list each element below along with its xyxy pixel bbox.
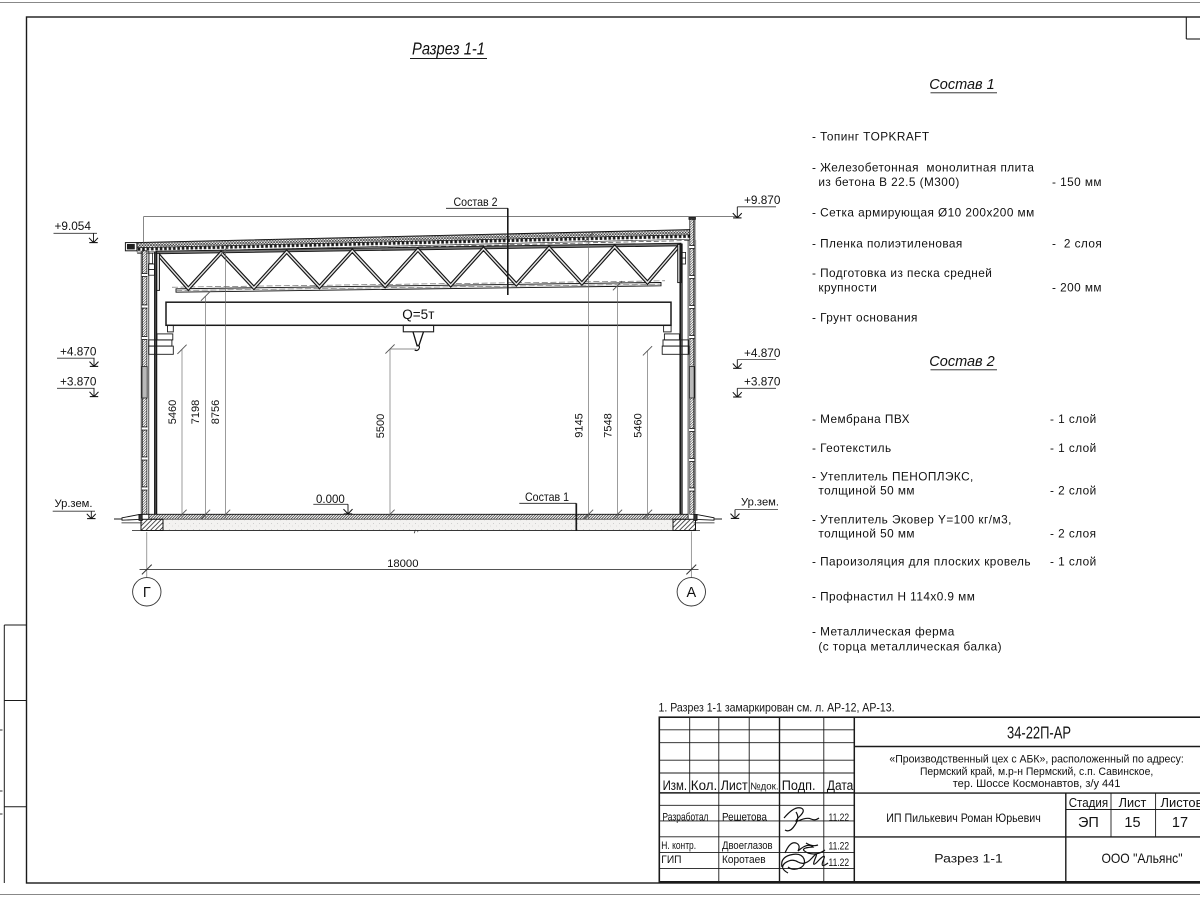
svg-text:ООО "Альянс": ООО "Альянс": [1101, 851, 1182, 866]
svg-text:- Геотекстиль: - Геотекстиль: [812, 441, 892, 455]
svg-text:5460: 5460: [167, 400, 179, 424]
svg-text:Решетова: Решетова: [722, 812, 767, 824]
svg-text:11.22: 11.22: [829, 812, 850, 824]
svg-text:Кол.: Кол.: [691, 778, 718, 793]
svg-text:Состав 2: Состав 2: [454, 195, 498, 209]
svg-text:- Утеплитель Эковер Y=100 кг/м: - Утеплитель Эковер Y=100 кг/м3,: [812, 512, 1012, 526]
svg-text:- 1 слой: - 1 слой: [1050, 554, 1097, 568]
svg-text:Дата: Дата: [827, 778, 854, 793]
svg-text:+3.870: +3.870: [60, 375, 97, 389]
svg-text:- Сетка армирующая Ø10 200х200: - Сетка армирующая Ø10 200х200 мм: [812, 206, 1035, 220]
svg-text:№док.: №док.: [750, 782, 778, 793]
svg-text:- Грунт основания: - Грунт основания: [812, 311, 918, 325]
svg-text:- 2 слой: - 2 слой: [1050, 483, 1097, 497]
svg-text:ГИП: ГИП: [661, 854, 681, 866]
svg-text:- Подготовка из песка средней: - Подготовка из песка средней: [812, 266, 992, 280]
svg-text:7198: 7198: [190, 400, 202, 424]
svg-text:Разрез 1-1: Разрез 1-1: [934, 852, 1003, 866]
svg-text:+4.870: +4.870: [60, 345, 97, 359]
svg-text:34-22П-АР: 34-22П-АР: [1007, 723, 1071, 743]
svg-text:Разрез 1-1: Разрез 1-1: [412, 39, 485, 59]
svg-text:15: 15: [1124, 815, 1140, 831]
svg-text:Состав 2: Состав 2: [929, 354, 994, 370]
svg-text:18000: 18000: [387, 558, 418, 570]
svg-text:Лист: Лист: [721, 778, 748, 793]
svg-text:(с торца металлическая балка): (с торца металлическая балка): [812, 639, 1002, 653]
svg-text:0.000: 0.000: [316, 494, 345, 506]
svg-text:Разработал: Разработал: [662, 812, 708, 824]
svg-text:Подп.: Подп.: [782, 778, 816, 793]
svg-text:11.22: 11.22: [829, 841, 850, 853]
svg-text:Листов: Листов: [1161, 795, 1200, 810]
svg-text:Н. контр.: Н. контр.: [661, 840, 696, 852]
svg-text:- 2 слоя: - 2 слоя: [1052, 237, 1102, 251]
svg-text:+3.870: +3.870: [744, 375, 781, 389]
svg-text:11.22: 11.22: [829, 857, 850, 869]
svg-text:из бетона В 22.5 (М300): из бетона В 22.5 (М300): [812, 175, 960, 189]
svg-text:Состав 1: Состав 1: [525, 490, 569, 504]
svg-text:- Утеплитель ПЕНОПЛЭКС,: - Утеплитель ПЕНОПЛЭКС,: [812, 469, 974, 483]
svg-text:- 150 мм: - 150 мм: [1052, 175, 1102, 189]
svg-text:- Железобетонная монолитная п: - Железобетонная монолитная плита: [812, 161, 1034, 175]
svg-text:- 1 слой: - 1 слой: [1050, 412, 1097, 426]
svg-text:+9.054: +9.054: [55, 219, 92, 233]
svg-text:- 2 слоя: - 2 слоя: [1050, 526, 1097, 540]
svg-text:толщиной 50 мм: толщиной 50 мм: [812, 483, 915, 497]
svg-text:Q=5т: Q=5т: [402, 307, 434, 322]
svg-text:Состав 1: Состав 1: [929, 77, 994, 93]
svg-text:крупности: крупности: [812, 280, 877, 294]
svg-text:7548: 7548: [602, 413, 614, 437]
svg-text:- Мембрана ПВХ: - Мембрана ПВХ: [812, 412, 910, 426]
svg-text:1. Разрез 1-1 замаркирован см.: 1. Разрез 1-1 замаркирован см. л. АР-12,…: [659, 701, 895, 715]
svg-text:ИП Пилькевич Роман Юрьевич: ИП Пилькевич Роман Юрьевич: [886, 811, 1041, 825]
svg-text:5460: 5460: [632, 413, 644, 437]
svg-text:+9.870: +9.870: [744, 193, 781, 207]
svg-text:- Пленка полиэтиленовая: - Пленка полиэтиленовая: [812, 237, 963, 251]
svg-text:А: А: [686, 585, 696, 601]
svg-text:- Профнастил Н 114х0.9 мм: - Профнастил Н 114х0.9 мм: [812, 590, 975, 604]
svg-text:17: 17: [1172, 815, 1188, 831]
svg-text:- Топинг TOPKRAFT: - Топинг TOPKRAFT: [812, 129, 929, 143]
svg-text:Стадия: Стадия: [1069, 795, 1108, 810]
svg-text:+4.870: +4.870: [744, 346, 781, 360]
svg-text:- 1 слой: - 1 слой: [1050, 441, 1097, 455]
svg-text:«Производственный цех с АБК»,: «Производственный цех с АБК», расположен…: [889, 753, 1184, 765]
svg-text:- 200 мм: - 200 мм: [1052, 280, 1102, 294]
svg-text:Двоеглазов: Двоеглазов: [722, 840, 773, 852]
svg-text:9145: 9145: [573, 413, 585, 437]
svg-text:тер. Шоссе Космонавтов, з/у 44: тер. Шоссе Космонавтов, з/у 441: [953, 778, 1121, 790]
svg-text:ЭП: ЭП: [1078, 815, 1099, 831]
svg-text:Изм.: Изм.: [663, 778, 688, 793]
svg-text:толщиной 50 мм: толщиной 50 мм: [812, 526, 915, 540]
svg-text:- Металлическая ферма: - Металлическая ферма: [812, 625, 955, 639]
svg-text:Пермский край, м.р-н Пермский,: Пермский край, м.р-н Пермский, с.п. Сави…: [920, 766, 1153, 778]
svg-text:Лист: Лист: [1119, 795, 1147, 810]
svg-text:Ур.зем.: Ур.зем.: [55, 498, 93, 510]
svg-text:5500: 5500: [375, 414, 387, 438]
svg-text:8756: 8756: [210, 400, 222, 424]
svg-text:Г: Г: [143, 585, 151, 601]
svg-text:- Пароизоляция для плоских кро: - Пароизоляция для плоских кровель: [812, 554, 1031, 568]
svg-text:Ур.зем.: Ур.зем.: [741, 497, 779, 509]
svg-text:Коротаев: Коротаев: [722, 854, 766, 866]
